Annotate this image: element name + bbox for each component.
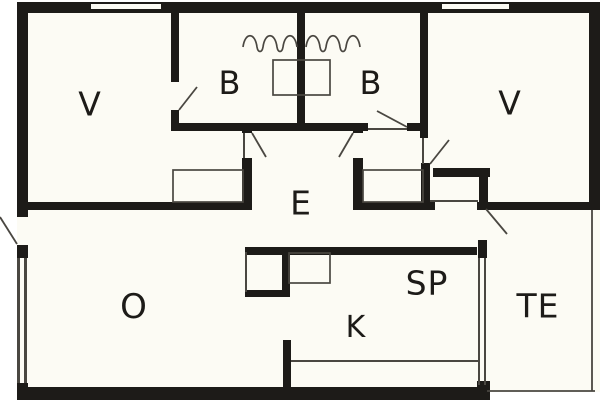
b1-door-swing xyxy=(179,87,197,110)
room-label-e: E xyxy=(290,187,312,220)
hall-left-door-swing xyxy=(252,133,266,157)
b2-door-swing xyxy=(377,111,407,127)
hall-right-door-swing xyxy=(339,133,353,157)
floor-plan: VBBVEOSPKTE xyxy=(0,0,600,400)
room-label-v1: V xyxy=(78,88,102,121)
bed-between-b-rooms xyxy=(273,60,330,95)
room-label-b2: B xyxy=(360,67,383,99)
room-label-v2: V xyxy=(498,87,522,120)
wardrobe-right xyxy=(363,170,423,202)
wave-line-left xyxy=(243,36,297,52)
room-label-k: K xyxy=(346,313,367,343)
terrace-door-swing xyxy=(486,209,507,234)
kitchen-box xyxy=(289,253,330,283)
wave-line-right xyxy=(306,36,360,52)
room-label-o: O xyxy=(120,290,148,324)
entry-door-swing xyxy=(0,217,17,244)
wardrobe-left xyxy=(173,170,243,202)
v2-door-swing xyxy=(430,140,449,164)
room-label-b1: B xyxy=(219,67,242,99)
room-label-te: TE xyxy=(516,290,559,323)
room-label-sp: SP xyxy=(406,267,449,300)
